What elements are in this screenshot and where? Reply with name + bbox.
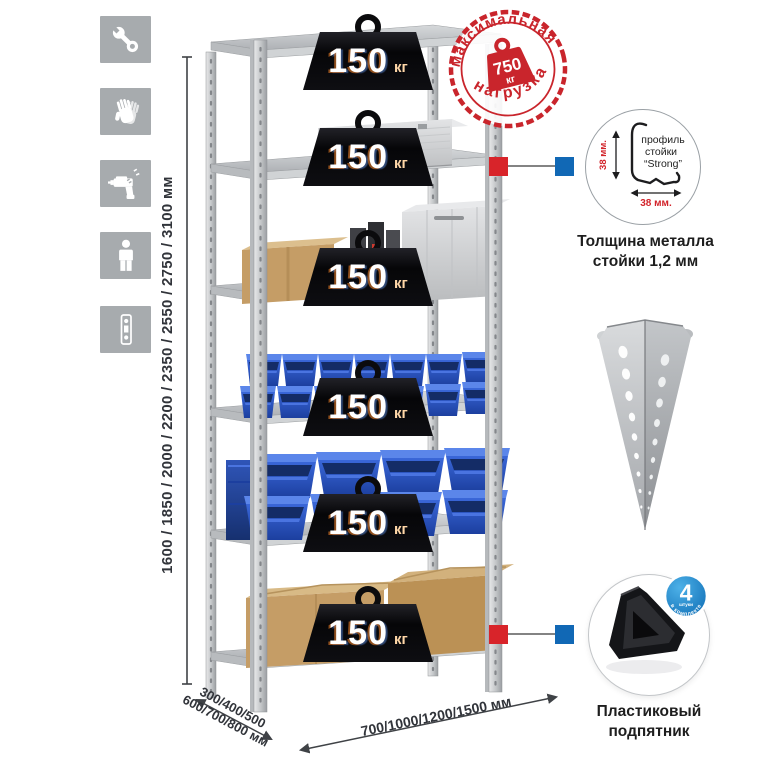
- weight-value: 150: [328, 258, 388, 297]
- profile-dim-horizontal: 38 мм.: [640, 198, 672, 209]
- corner-post-image: [593, 312, 697, 534]
- weight-badge-4: 150кг: [303, 360, 433, 440]
- weight-badge-1: 150кг: [303, 14, 433, 94]
- weight-value: 150: [328, 504, 388, 543]
- person-icon: [110, 239, 142, 273]
- weight-unit: кг: [394, 631, 408, 648]
- profile-drawing: 38 мм. 38 мм. профиль стойки “Strong”: [586, 110, 699, 223]
- profile-caption-line1: Толщина металла: [563, 232, 728, 252]
- infographic-canvas: 1600 / 1850 / 2000 / 2200 / 2350 / 2550 …: [0, 0, 765, 765]
- weight-value: 150: [328, 138, 388, 177]
- height-dimension-line: [182, 57, 192, 684]
- profile-caption-line2: стойки 1,2 мм: [563, 252, 728, 272]
- weight-value: 150: [328, 614, 388, 653]
- profile-text-3: “Strong”: [644, 158, 682, 170]
- badge-small-text: штуки: [679, 602, 693, 607]
- weight-unit: кг: [394, 275, 408, 292]
- gloves-icon: [109, 95, 143, 129]
- callout-connector-bottom: [489, 625, 574, 644]
- tile-post-profile: [100, 306, 151, 353]
- callout-marker-red-top: [489, 157, 508, 176]
- tile-gloves: [100, 88, 151, 135]
- foot-caption-line2: подпятник: [563, 722, 735, 742]
- callout-marker-red-bottom: [489, 625, 508, 644]
- included-count-badge: 4 штуки в комплекте: [662, 572, 710, 620]
- tile-wrench: [100, 16, 151, 63]
- callout-marker-blue-bottom: [555, 625, 574, 644]
- weight-value: 150: [328, 42, 388, 81]
- profile-text-2: стойки: [645, 146, 677, 158]
- foot-caption-line1: Пластиковый: [563, 702, 735, 722]
- wrench-icon: [109, 23, 143, 57]
- weight-unit: кг: [394, 155, 408, 172]
- callout-connector-top: [489, 157, 574, 176]
- weight-badge-5: 150кг: [303, 476, 433, 556]
- weight-unit: кг: [394, 521, 408, 538]
- profile-dim-vertical: 38 мм.: [598, 140, 609, 170]
- profile-text-1: профиль: [641, 134, 685, 146]
- weight-unit: кг: [394, 405, 408, 422]
- max-load-stamp: максимальная нагрузка 750 кг: [447, 8, 569, 130]
- weight-value: 150: [328, 388, 388, 427]
- foot-caption: Пластиковый подпятник: [563, 702, 735, 742]
- weight-unit: кг: [394, 59, 408, 76]
- weight-badge-3: 150кг: [303, 230, 433, 310]
- weight-badge-6: 150кг: [303, 586, 433, 666]
- profile-caption: Толщина металла стойки 1,2 мм: [563, 232, 728, 272]
- tile-drill: [100, 160, 151, 207]
- tile-person: [100, 232, 151, 279]
- post-profile-icon: [110, 312, 142, 348]
- weight-badge-2: 150кг: [303, 110, 433, 190]
- drill-icon: [108, 166, 144, 202]
- profile-detail-circle: 38 мм. 38 мм. профиль стойки “Strong”: [585, 109, 701, 225]
- callout-marker-blue-top: [555, 157, 574, 176]
